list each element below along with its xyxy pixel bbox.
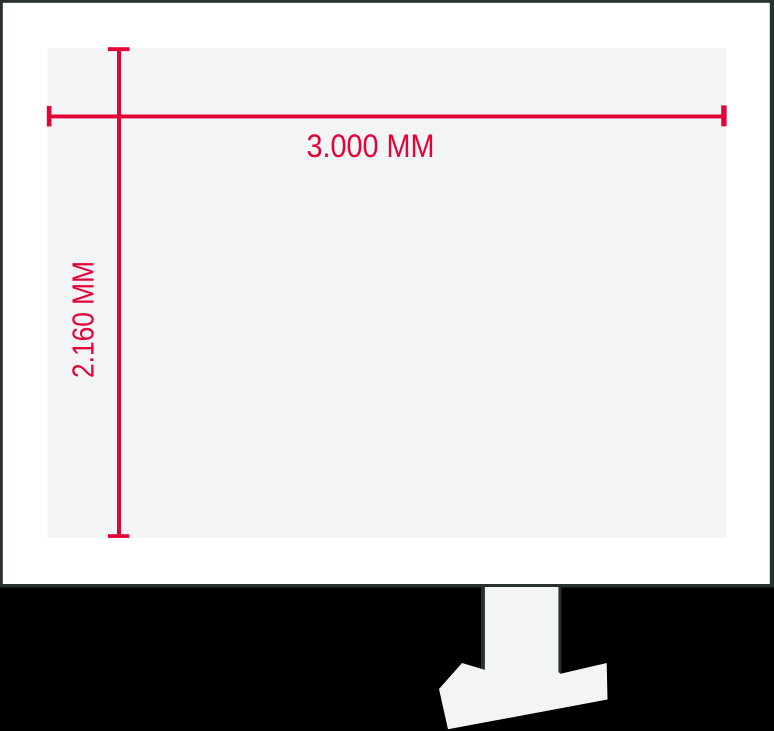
svg-text:2.160 MM: 2.160 MM (67, 261, 101, 378)
svg-text:3.000 MM: 3.000 MM (307, 128, 435, 164)
